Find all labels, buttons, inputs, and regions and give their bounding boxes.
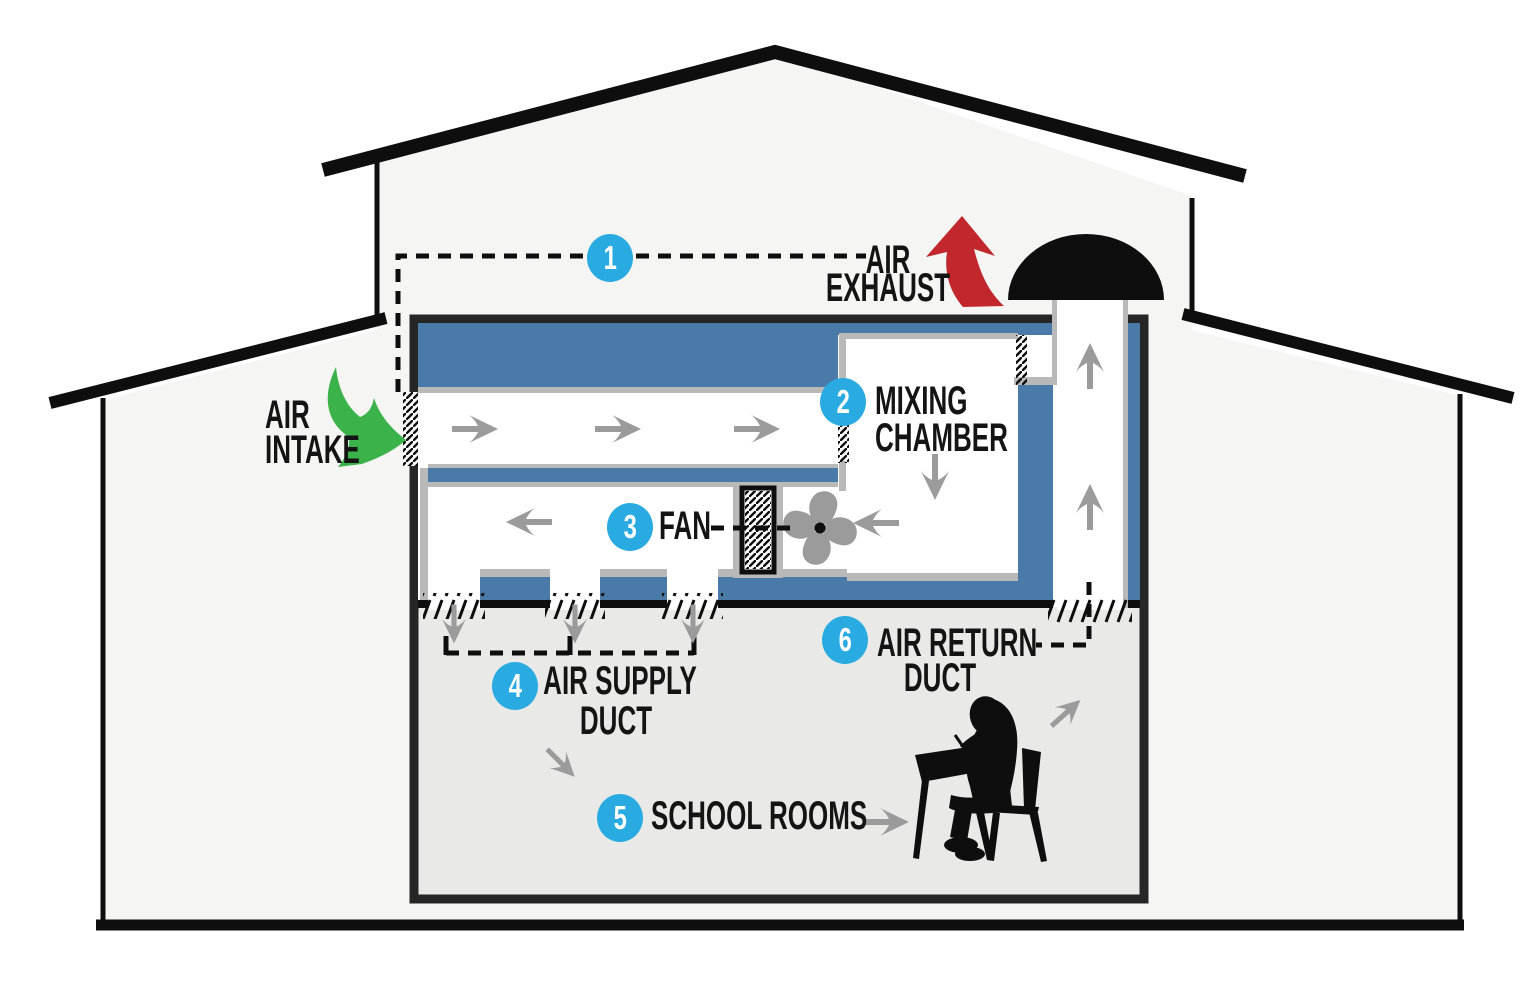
- mixing-chamber-label-line1: MIXING: [875, 381, 967, 421]
- mid-duct-wall: [428, 468, 838, 483]
- floor-island-cap: [476, 569, 554, 577]
- ceiling-line: [600, 600, 667, 608]
- step-badge-2: 2: [820, 378, 866, 426]
- step-badge-1: 1: [587, 234, 633, 282]
- step-badge-6: 6: [822, 616, 868, 664]
- step-badge-3: 3: [607, 503, 653, 551]
- diagram-canvas: AIR EXHAUST AIR INTAKE 1 2 MIXING CHAMBE…: [0, 0, 1539, 991]
- building-right-wing: [1192, 330, 1460, 922]
- duct-left-liner: [1052, 296, 1057, 385]
- step-number-6: 6: [838, 621, 851, 659]
- air-return-duct-label-line2: DUCT: [843, 658, 1038, 698]
- duct-right-liner: [1123, 296, 1128, 608]
- ceiling-line: [480, 600, 550, 608]
- air-supply-duct-label-line2: DUCT: [519, 701, 714, 741]
- intake-damper: [838, 423, 849, 463]
- ventilation-diagram: [0, 0, 1539, 991]
- intake-duct-top-liner: [418, 387, 848, 393]
- school-rooms-label: SCHOOL ROOMS: [651, 796, 867, 836]
- floor-island-cap: [596, 569, 671, 577]
- chamber-left-wall-lower: [839, 461, 846, 491]
- supply-duct-left-liner: [420, 468, 428, 604]
- air-intake-opening: [403, 392, 418, 466]
- air-exhaust-label-line2: EXHAUST: [791, 268, 986, 308]
- upper-duct-wall: [418, 323, 838, 390]
- exhaust-damper: [1016, 335, 1027, 385]
- chamber-bottom-liner: [842, 573, 1020, 581]
- step-number-3: 3: [623, 508, 636, 546]
- mixing-chamber-label-line2: CHAMBER: [875, 418, 1008, 458]
- air-intake-label-line2: INTAKE: [265, 430, 360, 470]
- air-supply-duct-label-line1: AIR SUPPLY: [523, 661, 718, 701]
- chamber-top-liner: [842, 333, 1018, 339]
- step-number-1: 1: [603, 239, 616, 277]
- ceiling-line: [718, 600, 1053, 608]
- step-number-4: 4: [508, 667, 521, 705]
- fan-label: FAN: [659, 506, 711, 546]
- step-badge-5: 5: [597, 794, 643, 842]
- right-duct-wall: [1127, 323, 1140, 600]
- step-number-5: 5: [613, 799, 626, 837]
- chamber-right-column: [1018, 385, 1053, 607]
- step-number-2: 2: [836, 383, 849, 421]
